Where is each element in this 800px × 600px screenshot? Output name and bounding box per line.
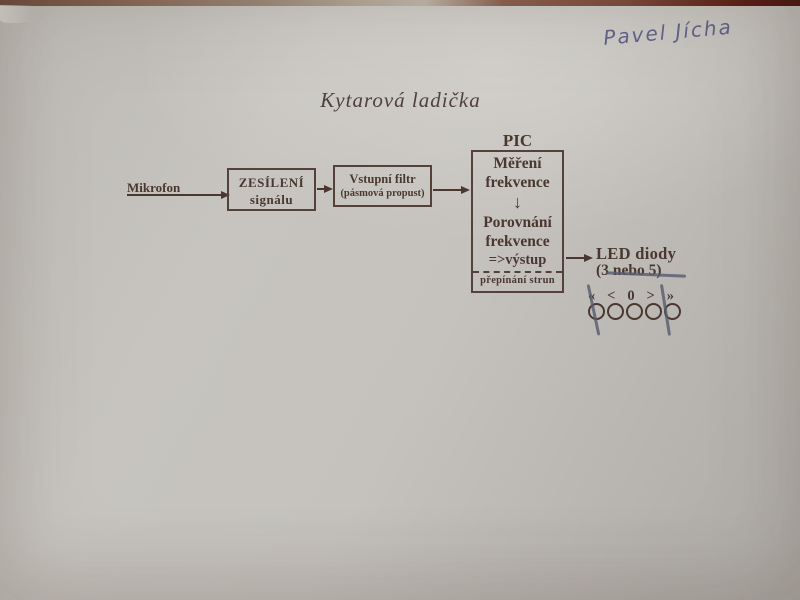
led-count-suffix: ) xyxy=(656,262,661,279)
arrow-zesileni-to-filtr-head-icon xyxy=(324,185,333,193)
block-zesileni-signalu: ZESÍLENÍ signálu xyxy=(227,168,316,211)
led-circle xyxy=(645,303,662,320)
arrow-pic-to-led-line xyxy=(566,257,586,259)
led-circle xyxy=(607,303,624,320)
pic-down-arrow-icon: ↓ xyxy=(513,192,522,213)
pic-prepinani-label: přepínání strun xyxy=(480,273,555,288)
paper-corner-fold xyxy=(0,5,46,23)
pic-porovnani-line1: Porovnání xyxy=(483,213,552,232)
arrow-filtr-to-pic-line xyxy=(433,189,463,191)
pic-mereni-line1: Měření xyxy=(493,154,541,173)
pic-mereni-line2: frekvence xyxy=(485,173,549,192)
block-vstupni-filtr: Vstupní filtr (pásmová propust) xyxy=(333,165,432,207)
zesileni-line2: signálu xyxy=(229,191,314,208)
arrow-pic-to-led-head-icon xyxy=(584,254,593,262)
pic-porovnani-line2: frekvence xyxy=(485,232,549,251)
filtr-line1: Vstupní filtr xyxy=(335,172,430,187)
photographed-paper: Pavel Jícha Kytarová ladička Mikrofon ZE… xyxy=(0,0,800,600)
author-signature: Pavel Jícha xyxy=(602,10,783,50)
table-background-strip xyxy=(0,0,800,6)
diagram-title: Kytarová ladička xyxy=(283,88,518,113)
mikrofon-arrow-line xyxy=(127,194,223,196)
led-count-struck-text: nebo 5 xyxy=(613,262,657,279)
zesileni-line1: ZESÍLENÍ xyxy=(229,174,314,191)
led-diody-label: LED diody xyxy=(596,244,676,264)
filtr-line2: (pásmová propust) xyxy=(335,187,430,201)
block-pic: Měření frekvence ↓ Porovnání frekvence =… xyxy=(471,150,564,293)
pic-vystup-label: =>výstup xyxy=(489,251,547,269)
pic-label: PIC xyxy=(471,131,564,151)
led-circle xyxy=(626,303,643,320)
arrow-filtr-to-pic-head-icon xyxy=(461,186,470,194)
